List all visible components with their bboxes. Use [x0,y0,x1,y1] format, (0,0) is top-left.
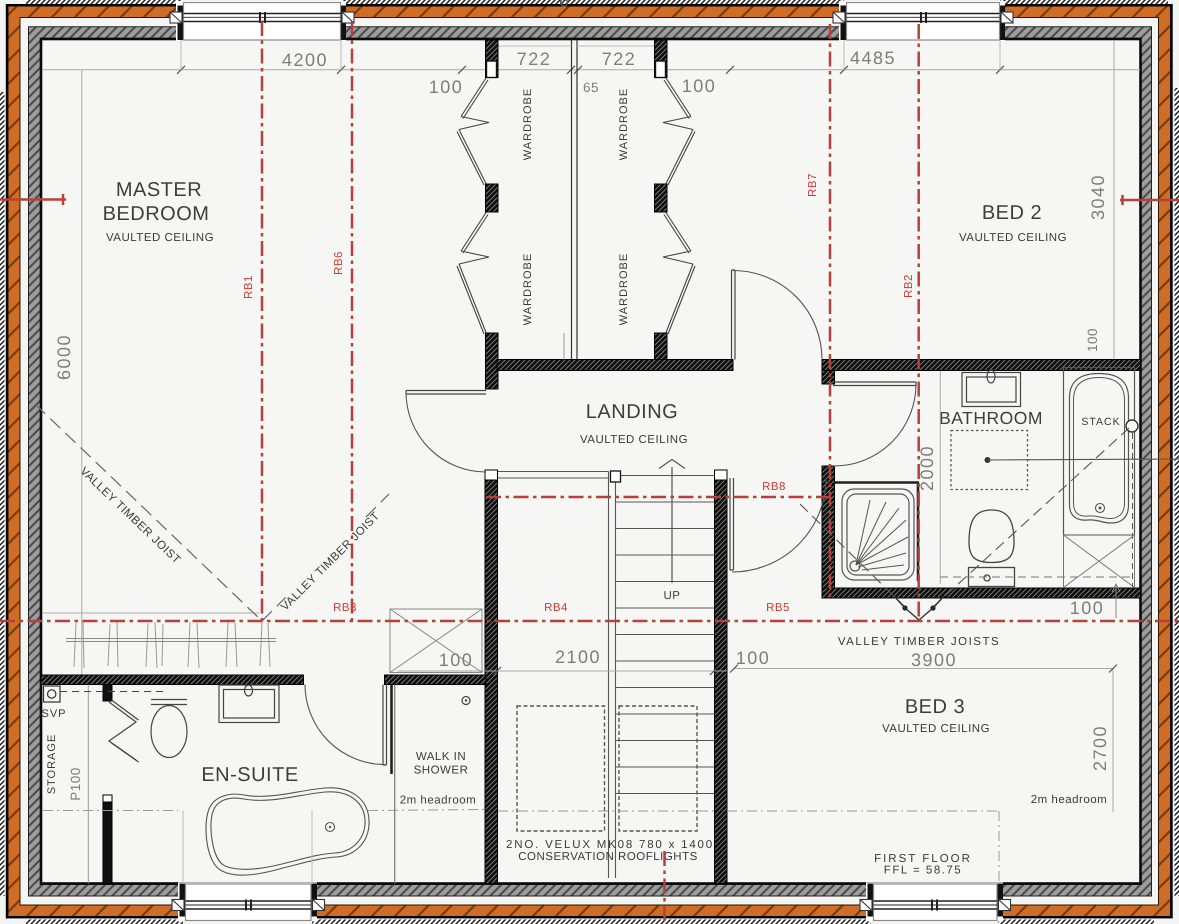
svg-text:WARDROBE: WARDROBE [522,88,534,160]
svg-text:2100: 2100 [555,647,601,667]
svg-text:722: 722 [602,49,637,69]
svg-text:100: 100 [736,648,771,668]
svg-text:RB5: RB5 [766,602,790,614]
svg-text:4200: 4200 [282,50,328,70]
svg-text:VAULTED CEILING: VAULTED CEILING [580,434,688,446]
svg-text:WALK IN: WALK IN [416,751,466,763]
svg-text:6000: 6000 [54,334,74,380]
svg-text:VAULTED CEILING: VAULTED CEILING [959,232,1067,244]
svg-text:RB4: RB4 [544,602,568,614]
svg-text:100: 100 [429,77,464,97]
svg-text:UP: UP [664,590,681,602]
svg-text:FIRST FLOOR: FIRST FLOOR [874,853,972,865]
svg-text:P100: P100 [68,767,83,801]
svg-text:SHOWER: SHOWER [414,765,469,777]
svg-text:BEDROOM: BEDROOM [103,203,210,225]
svg-text:VAULTED CEILING: VAULTED CEILING [882,723,990,735]
svg-text:LANDING: LANDING [586,401,678,423]
svg-text:RB8: RB8 [762,481,786,493]
svg-text:BED 3: BED 3 [905,696,965,718]
svg-text:CONSERVATION ROOFLIGHTS: CONSERVATION ROOFLIGHTS [518,851,698,863]
svg-text:RB2: RB2 [903,274,915,298]
svg-text:2m headroom: 2m headroom [400,795,476,807]
svg-text:2000: 2000 [917,445,937,491]
svg-text:RB6: RB6 [333,251,345,275]
svg-text:WARDROBE: WARDROBE [618,88,630,160]
svg-text:100: 100 [1085,328,1100,352]
svg-text:WARDROBE: WARDROBE [618,253,630,325]
svg-text:FFL = 58.75: FFL = 58.75 [884,865,962,877]
svg-text:BATHROOM: BATHROOM [939,408,1043,428]
svg-text:SVP: SVP [41,708,66,720]
svg-text:BED 2: BED 2 [982,202,1042,224]
svg-text:65: 65 [583,80,599,95]
svg-text:3040: 3040 [1088,174,1108,220]
svg-text:4485: 4485 [850,48,896,68]
svg-text:2NO. VELUX MK08 780 x 1400: 2NO. VELUX MK08 780 x 1400 [506,839,714,851]
svg-text:100: 100 [1070,598,1105,618]
svg-text:RB3: RB3 [333,602,357,614]
svg-text:RB7: RB7 [807,173,819,197]
svg-text:2700: 2700 [1090,725,1110,771]
svg-text:100: 100 [682,76,717,96]
svg-text:3900: 3900 [911,650,957,670]
svg-text:STACK: STACK [1081,416,1120,428]
svg-text:WARDROBE: WARDROBE [522,253,534,325]
svg-text:2m headroom: 2m headroom [1031,794,1107,806]
svg-text:100: 100 [439,650,474,670]
svg-text:EN-SUITE: EN-SUITE [201,764,298,786]
svg-text:722: 722 [517,49,552,69]
svg-text:VALLEY TIMBER JOISTS: VALLEY TIMBER JOISTS [838,636,1000,648]
svg-text:VAULTED CEILING: VAULTED CEILING [106,232,214,244]
svg-text:MASTER: MASTER [116,179,202,201]
svg-text:STORAGE: STORAGE [46,734,58,795]
svg-text:RB1: RB1 [243,275,255,299]
